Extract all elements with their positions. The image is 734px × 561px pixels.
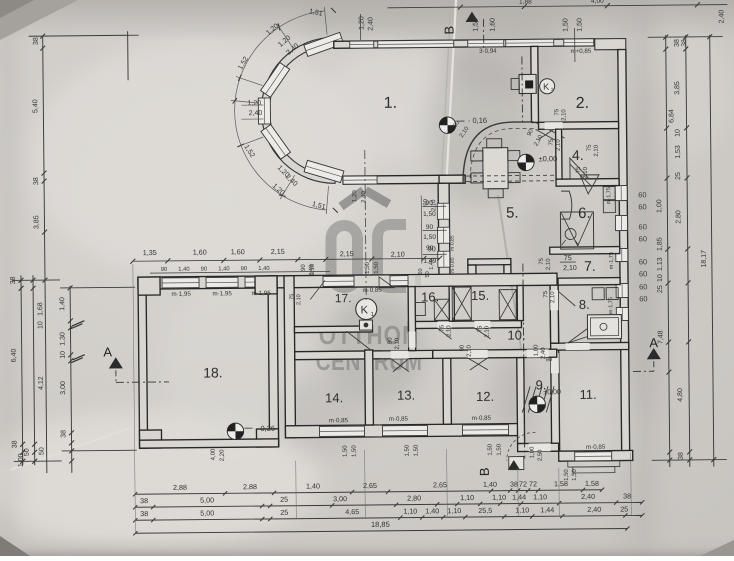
svg-text:3,85: 3,85 — [674, 81, 681, 95]
svg-text:m+0,85: m+0,85 — [570, 48, 591, 55]
svg-text:14.: 14. — [325, 390, 343, 405]
svg-text:2,40: 2,40 — [249, 110, 263, 117]
svg-text:B: B — [442, 26, 457, 35]
svg-text:1,10: 1,10 — [515, 505, 529, 514]
svg-text:3·0,94: 3·0,94 — [479, 48, 497, 55]
svg-text:1,53: 1,53 — [675, 145, 682, 159]
svg-text:1,40: 1,40 — [59, 297, 66, 311]
svg-text:2,40: 2,40 — [718, 10, 725, 24]
svg-text:75: 75 — [539, 257, 545, 264]
svg-text:4,80: 4,80 — [677, 388, 684, 402]
svg-text:90: 90 — [423, 198, 429, 205]
svg-text:25: 25 — [280, 508, 288, 517]
svg-text:1,60: 1,60 — [490, 18, 497, 32]
svg-text:60: 60 — [639, 269, 647, 278]
svg-text:3,00: 3,00 — [333, 494, 347, 503]
svg-text:1,50: 1,50 — [343, 445, 349, 457]
svg-text:2,80: 2,80 — [407, 493, 421, 502]
svg-text:38: 38 — [140, 509, 148, 518]
svg-text:1,50: 1,50 — [488, 443, 494, 455]
svg-text:2,88: 2,88 — [173, 483, 187, 492]
svg-text:4,65: 4,65 — [345, 507, 359, 516]
svg-text:1,50: 1,50 — [577, 18, 584, 32]
svg-text:- 0,16: - 0,16 — [468, 116, 487, 125]
svg-text:4,00: 4,00 — [211, 448, 217, 460]
svg-text:25: 25 — [280, 495, 288, 504]
svg-text:50: 50 — [39, 447, 46, 455]
svg-text:1,35: 1,35 — [143, 248, 157, 257]
svg-text:6.: 6. — [578, 205, 591, 222]
svg-text:38: 38 — [33, 177, 40, 185]
svg-text:6,84: 6,84 — [668, 109, 675, 123]
svg-text:15.: 15. — [471, 288, 489, 303]
svg-text:±0,00: ±0,00 — [538, 154, 557, 163]
svg-text:38: 38 — [33, 37, 40, 45]
svg-text:1,50: 1,50 — [414, 444, 420, 456]
svg-text:2,10: 2,10 — [310, 263, 316, 275]
svg-text:1,00: 1,00 — [18, 453, 25, 467]
svg-text:2,10: 2,10 — [546, 258, 552, 270]
svg-text:2,40: 2,40 — [361, 190, 367, 202]
svg-text:1,10: 1,10 — [403, 507, 417, 516]
svg-text:1,68: 1,68 — [37, 302, 44, 316]
svg-text:75: 75 — [564, 255, 572, 262]
svg-text:m·0,85: m·0,85 — [450, 257, 456, 273]
svg-text:1,20: 1,20 — [358, 16, 365, 30]
svg-text:60: 60 — [639, 257, 647, 266]
svg-text:1,10: 1,10 — [447, 506, 461, 515]
svg-text:1,20: 1,20 — [352, 190, 358, 202]
svg-text:1,00: 1,00 — [534, 344, 540, 356]
svg-text:38: 38 — [60, 430, 67, 438]
svg-text:6,40: 6,40 — [11, 348, 18, 362]
svg-text:25: 25 — [675, 172, 682, 180]
svg-text:1,58: 1,58 — [554, 479, 568, 488]
svg-text:1,40: 1,40 — [258, 266, 269, 272]
svg-text:m·0,85: m·0,85 — [586, 444, 606, 451]
svg-text:1,60: 1,60 — [193, 248, 207, 257]
svg-text:75: 75 — [549, 138, 555, 145]
svg-text:2,10: 2,10 — [563, 265, 577, 272]
svg-text:60: 60 — [638, 222, 646, 231]
svg-text:1,00: 1,00 — [656, 199, 663, 213]
svg-text:1,20: 1,20 — [247, 100, 261, 107]
svg-text:10: 10 — [60, 351, 67, 359]
svg-text:2,10: 2,10 — [594, 144, 600, 156]
svg-text:K: K — [361, 304, 369, 316]
svg-text:m·1,75: m·1,75 — [606, 187, 612, 204]
svg-text:2,40: 2,40 — [367, 17, 374, 31]
svg-text:75: 75 — [576, 166, 582, 173]
svg-text:5.: 5. — [506, 205, 519, 222]
svg-text:38: 38 — [140, 496, 148, 505]
svg-text:12.: 12. — [476, 389, 494, 404]
svg-text:25,5: 25,5 — [478, 506, 492, 515]
svg-text:8.: 8. — [579, 297, 590, 312]
svg-text:11.: 11. — [580, 387, 597, 402]
svg-text:1,60: 1,60 — [231, 247, 245, 256]
svg-text:2.: 2. — [576, 95, 590, 112]
svg-text:4,00: 4,00 — [591, 0, 604, 5]
svg-text:1,10: 1,10 — [460, 493, 474, 502]
svg-text:75: 75 — [554, 108, 560, 115]
svg-text:75: 75 — [477, 325, 483, 332]
svg-text:18,17: 18,17 — [701, 250, 708, 268]
svg-text:75: 75 — [587, 144, 593, 151]
svg-text:1,50: 1,50 — [365, 261, 371, 273]
svg-text:50: 50 — [425, 271, 431, 277]
svg-text:- 0,36: - 0,36 — [256, 424, 275, 433]
svg-text:1,50: 1,50 — [572, 468, 578, 480]
svg-text:4,12: 4,12 — [38, 376, 45, 390]
svg-text:2,80: 2,80 — [675, 210, 682, 224]
svg-text:17.: 17. — [335, 291, 352, 305]
svg-text:2,40: 2,40 — [587, 505, 601, 514]
svg-text:2,10: 2,10 — [550, 291, 556, 303]
svg-text:38: 38 — [510, 480, 518, 489]
svg-text:1,40: 1,40 — [306, 481, 320, 490]
svg-text:2,10: 2,10 — [391, 250, 405, 259]
svg-text:1,40: 1,40 — [425, 506, 439, 515]
svg-text:38: 38 — [678, 452, 685, 460]
svg-text:1,50: 1,50 — [497, 443, 503, 455]
svg-text:m·0,85: m·0,85 — [450, 235, 456, 251]
svg-text:1.: 1. — [384, 95, 398, 112]
svg-text:75: 75 — [543, 290, 549, 297]
svg-text:1,10: 1,10 — [492, 493, 506, 502]
svg-text:1,44: 1,44 — [512, 492, 526, 501]
svg-text:38: 38 — [623, 491, 631, 500]
svg-text:m·0,85: m·0,85 — [472, 415, 492, 422]
svg-text:m·1,95: m·1,95 — [171, 291, 191, 298]
svg-text:13.: 13. — [397, 388, 415, 403]
svg-text:18.: 18. — [203, 364, 223, 380]
svg-text:7,48: 7,48 — [658, 330, 665, 344]
svg-text:25: 25 — [620, 505, 628, 514]
svg-text:7.: 7. — [584, 258, 596, 274]
svg-text:1,13: 1,13 — [657, 257, 664, 271]
svg-text:1,40: 1,40 — [483, 480, 497, 489]
svg-text:60: 60 — [639, 282, 647, 291]
svg-text:1,50: 1,50 — [473, 18, 480, 32]
svg-text:90: 90 — [388, 337, 394, 344]
svg-text:90: 90 — [428, 244, 436, 253]
svg-text:1,30: 1,30 — [60, 332, 67, 346]
svg-text:1,40: 1,40 — [218, 266, 229, 272]
svg-text:90: 90 — [161, 267, 168, 273]
svg-text:2,20: 2,20 — [220, 449, 226, 461]
svg-text:m·1,75: m·1,75 — [608, 297, 614, 314]
svg-text:2,15: 2,15 — [340, 249, 354, 258]
svg-text:m·1,75: m·1,75 — [609, 252, 615, 269]
svg-text:72: 72 — [519, 479, 527, 488]
svg-text:4.: 4. — [572, 147, 584, 163]
svg-text:2,10: 2,10 — [556, 139, 562, 151]
svg-text:60: 60 — [639, 294, 647, 303]
svg-text:5,40: 5,40 — [32, 99, 39, 113]
svg-text:18,85: 18,85 — [371, 520, 390, 529]
svg-text:9.: 9. — [536, 377, 547, 392]
svg-text:2,10: 2,10 — [431, 199, 437, 211]
svg-text:m·0,85: m·0,85 — [362, 287, 382, 294]
svg-text:m·1,95: m·1,95 — [212, 290, 232, 297]
svg-text:2,65: 2,65 — [433, 480, 447, 489]
svg-text:38: 38 — [681, 39, 688, 47]
svg-text:72: 72 — [529, 479, 537, 488]
svg-text:2,10: 2,10 — [561, 109, 567, 121]
svg-text:1,40: 1,40 — [178, 267, 189, 273]
svg-text:90: 90 — [545, 357, 552, 363]
svg-text:10: 10 — [37, 321, 44, 329]
svg-text:2,88: 2,88 — [243, 482, 257, 491]
svg-text:90: 90 — [301, 264, 307, 271]
svg-text:1,50: 1,50 — [563, 18, 570, 32]
svg-text:75: 75 — [289, 294, 295, 300]
svg-text:38: 38 — [12, 440, 19, 448]
svg-text:1,50: 1,50 — [374, 261, 380, 273]
svg-text:25: 25 — [657, 285, 664, 293]
svg-text:3: 3 — [551, 87, 554, 93]
svg-text:60: 60 — [638, 202, 646, 211]
svg-text:2,10: 2,10 — [583, 166, 589, 178]
svg-text:75: 75 — [439, 324, 445, 331]
svg-text:1,50: 1,50 — [423, 234, 436, 241]
svg-text:1,44: 1,44 — [540, 505, 554, 514]
svg-text:1,49: 1,49 — [429, 259, 435, 270]
svg-text:3,85: 3,85 — [33, 215, 40, 229]
svg-text:2,15: 2,15 — [271, 247, 285, 256]
svg-text:1,00: 1,00 — [530, 446, 536, 458]
svg-text:A: A — [103, 344, 112, 359]
svg-text:5,00: 5,00 — [200, 495, 214, 504]
svg-text:2,40: 2,40 — [581, 492, 595, 501]
svg-text:60: 60 — [639, 234, 647, 243]
svg-text:60: 60 — [418, 268, 424, 274]
svg-text:90: 90 — [426, 224, 434, 231]
svg-text:3,00: 3,00 — [60, 381, 67, 395]
svg-text:2,10: 2,10 — [446, 325, 452, 337]
svg-text:m·1,95: m·1,95 — [251, 290, 271, 297]
svg-text:1,85: 1,85 — [657, 237, 664, 251]
svg-text:38: 38 — [10, 276, 17, 284]
svg-text:m·0,85: m·0,85 — [329, 417, 349, 424]
svg-text:K: K — [543, 82, 549, 92]
svg-text:5,00: 5,00 — [200, 508, 214, 517]
svg-text:10: 10 — [675, 129, 682, 137]
svg-text:1,50: 1,50 — [405, 444, 411, 456]
svg-text:90: 90 — [460, 344, 466, 351]
svg-text:1,50: 1,50 — [352, 445, 358, 457]
svg-text:2,10: 2,10 — [484, 325, 490, 337]
svg-text:90: 90 — [201, 267, 208, 273]
svg-text:2,50: 2,50 — [538, 449, 544, 461]
svg-text:90: 90 — [241, 266, 248, 272]
svg-text:16.: 16. — [421, 289, 439, 304]
svg-text:1,10: 1,10 — [533, 492, 547, 501]
svg-text:1,58: 1,58 — [585, 479, 599, 488]
svg-text:10: 10 — [657, 274, 664, 282]
svg-text:2,10: 2,10 — [395, 337, 401, 349]
svg-text:10.: 10. — [507, 327, 525, 342]
svg-text:60: 60 — [638, 190, 646, 199]
svg-text:2,10: 2,10 — [467, 344, 473, 356]
svg-text:m·0,85: m·0,85 — [389, 416, 409, 423]
svg-text:B: B — [477, 467, 492, 476]
svg-text:38: 38 — [674, 39, 681, 47]
svg-text:1,88: 1,88 — [519, 0, 532, 6]
svg-text:2,10: 2,10 — [296, 294, 302, 305]
